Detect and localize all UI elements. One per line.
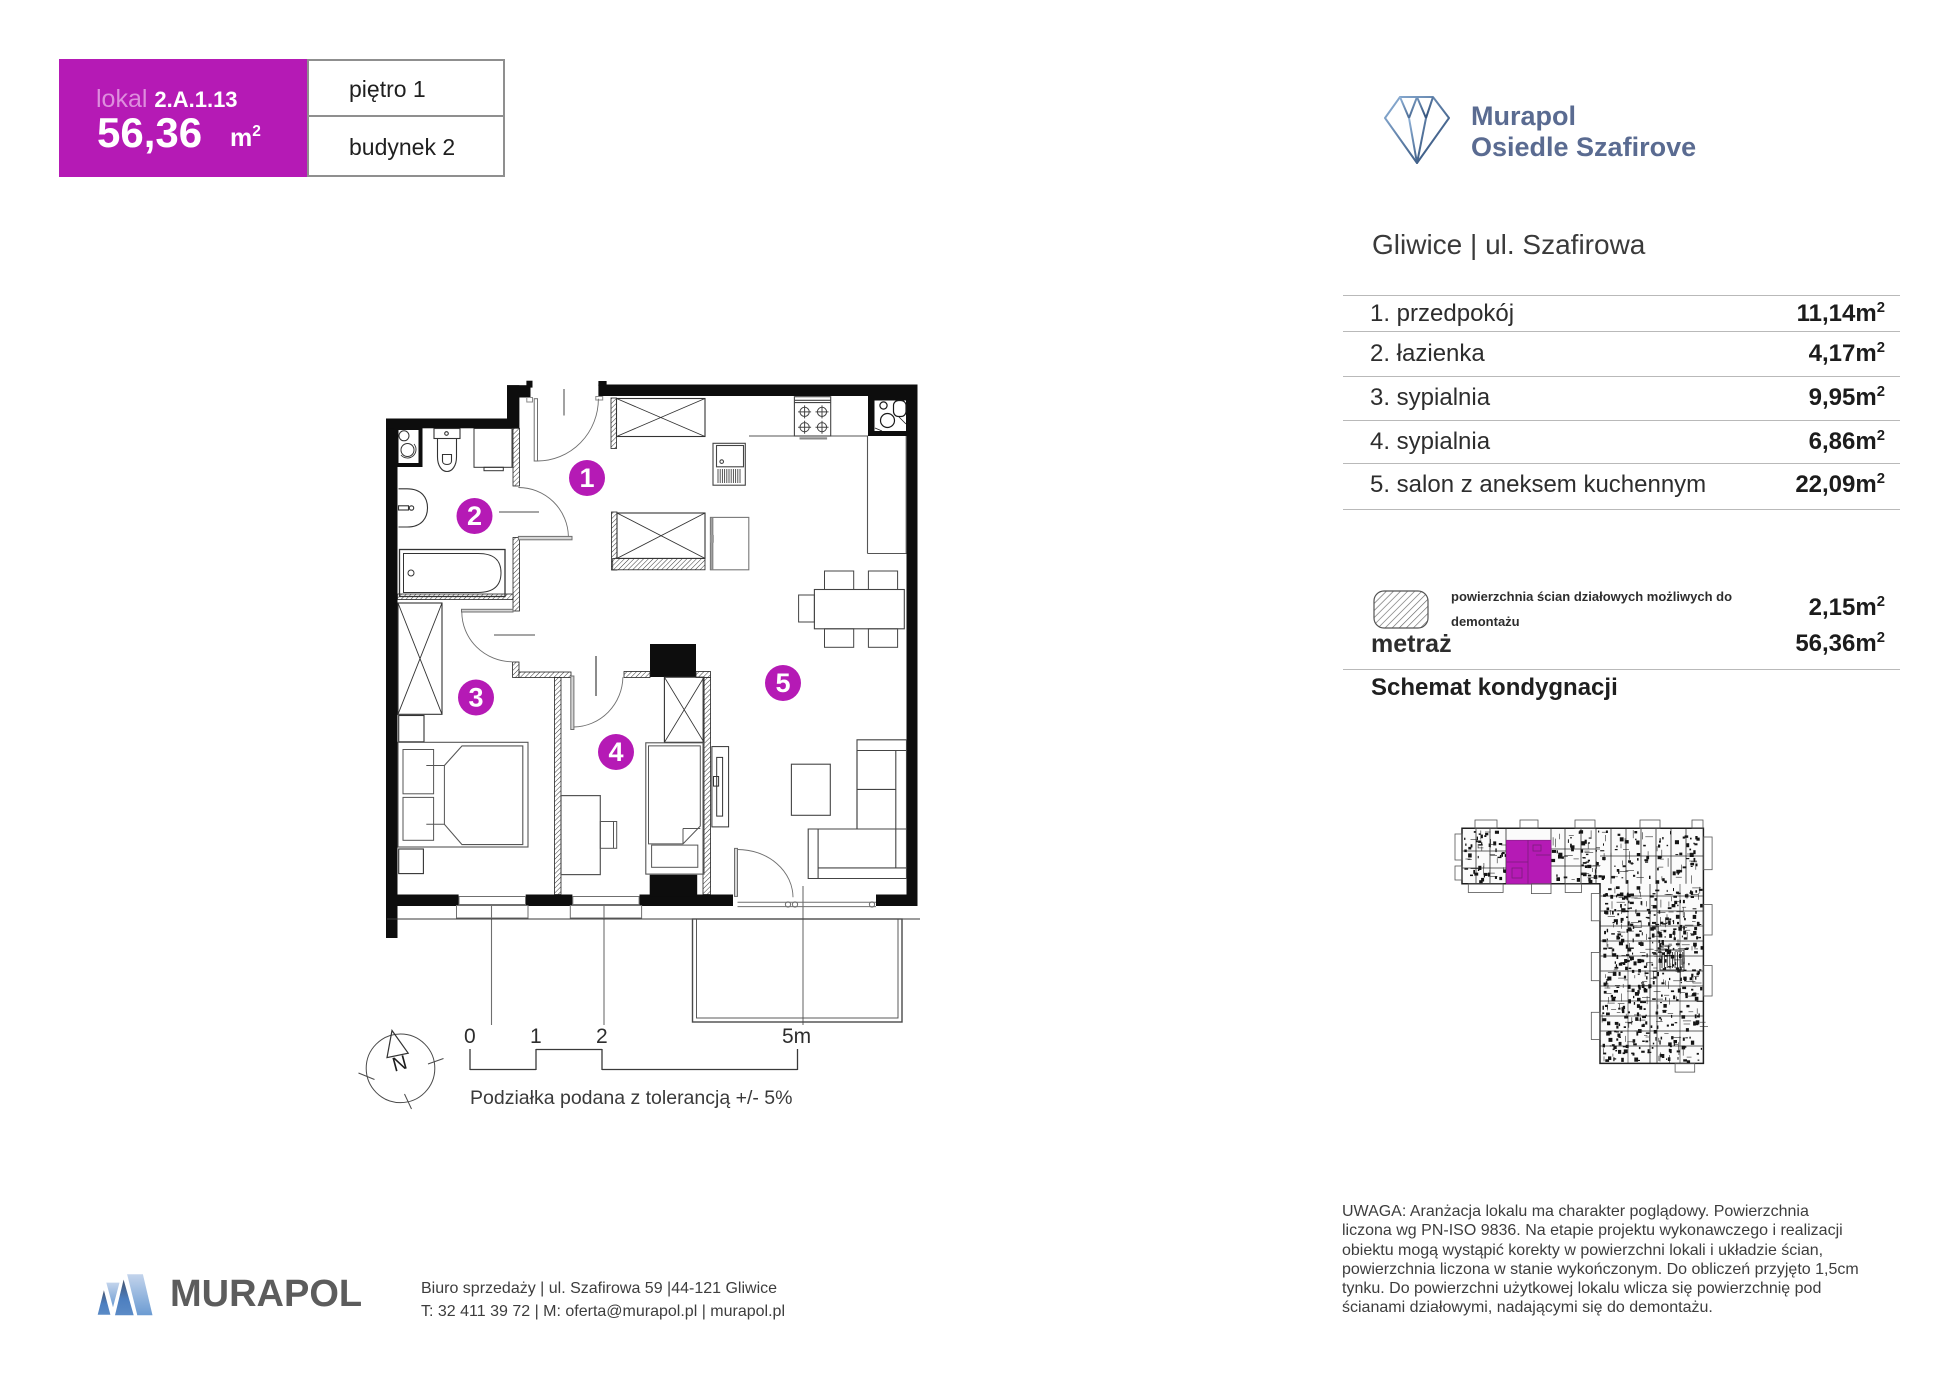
svg-text:3: 3 (468, 683, 483, 713)
svg-text:5m: 5m (782, 1025, 811, 1048)
svg-text:2: 2 (596, 1025, 608, 1048)
svg-text:Podziałka podana z tolerancją: Podziałka podana z tolerancją +/- 5% (470, 1087, 793, 1109)
svg-text:1: 1 (530, 1025, 542, 1048)
svg-text:2: 2 (467, 501, 482, 531)
svg-text:5: 5 (775, 668, 790, 698)
svg-text:4: 4 (608, 737, 623, 767)
svg-text:1: 1 (579, 463, 594, 493)
svg-text:0: 0 (464, 1025, 476, 1048)
svg-text:N: N (390, 1052, 410, 1077)
